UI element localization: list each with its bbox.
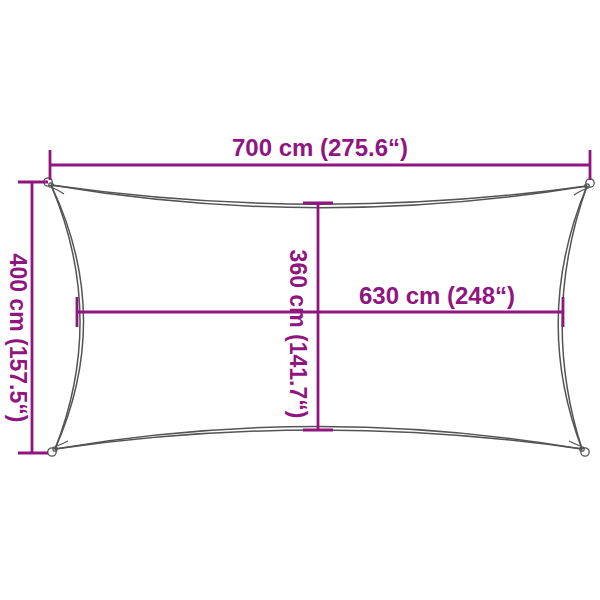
dimension-top-width-label: 700 cm (275.6“) bbox=[232, 134, 408, 161]
sail-edge-left-inner bbox=[51, 185, 84, 449]
sail-edge-top-outer bbox=[51, 185, 587, 204]
sail-diagram-canvas: 700 cm (275.6“) 400 cm (157.5“) 360 cm (… bbox=[0, 0, 600, 600]
dimension-middle-horizontal: 630 cm (248“) bbox=[77, 282, 563, 327]
sail-edge-bottom-outer bbox=[55, 430, 582, 449]
dimension-middle-horizontal-label: 630 cm (248“) bbox=[359, 282, 515, 309]
sail-edge-right-outer bbox=[562, 186, 587, 449]
dimension-middle-vertical-label: 360 cm (141.7“) bbox=[285, 250, 311, 419]
dimension-top-width: 700 cm (275.6“) bbox=[50, 134, 590, 180]
dimension-left-height: 400 cm (157.5“) bbox=[5, 182, 48, 453]
dimension-left-height-label: 400 cm (157.5“) bbox=[5, 254, 31, 423]
dimension-middle-vertical: 360 cm (141.7“) bbox=[285, 203, 333, 430]
dimension-diagram: 700 cm (275.6“) 400 cm (157.5“) 360 cm (… bbox=[0, 0, 600, 600]
